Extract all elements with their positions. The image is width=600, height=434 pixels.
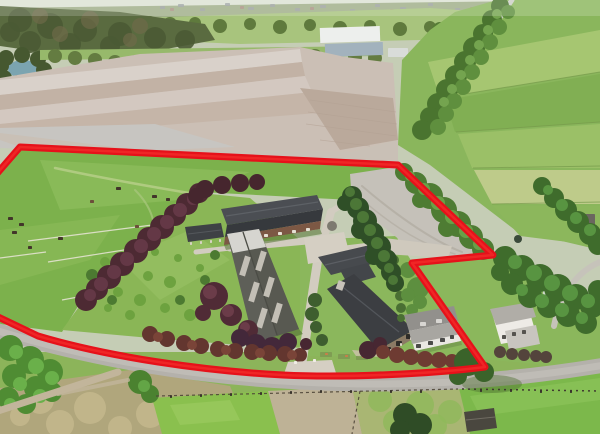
right-tree-highlight (543, 185, 553, 195)
white-house-windows (440, 338, 445, 342)
garden-trees-dark (175, 295, 185, 305)
garden-trees-small (104, 304, 112, 312)
garden-trees-small (174, 254, 182, 262)
gate-posts (313, 359, 316, 362)
stable-windows (306, 228, 310, 231)
grove-highlight (45, 371, 59, 385)
white-house-dormers (436, 319, 442, 323)
right-tree-highlight (544, 275, 560, 291)
distant-tree-row (244, 18, 256, 30)
neighbor-hedge (540, 351, 552, 363)
aerial-photo-svg (0, 0, 600, 434)
beech-row-highlight (160, 215, 174, 229)
lake-trees (14, 47, 30, 63)
conifers-highlight (357, 211, 369, 223)
south-hedge-highlight (221, 345, 231, 355)
sand-patches (74, 392, 106, 424)
beech-row-highlight (173, 203, 187, 217)
beech-behind-stable (249, 174, 265, 190)
neighbor-hedge (506, 348, 518, 360)
mixed-paddock-green (368, 388, 392, 412)
garden-trees-dark (107, 295, 117, 305)
beech-behind-stable (188, 188, 204, 204)
right-tree-highlight (526, 265, 542, 281)
grazing-animals (8, 217, 13, 220)
fence-posts (260, 392, 262, 395)
beech-behind-stable (213, 176, 231, 194)
stable-windows (292, 230, 296, 233)
white-house-windows (428, 341, 433, 345)
road-trees-mid (491, 19, 507, 35)
conifers-highlight (371, 237, 383, 249)
grove-highlight (28, 358, 44, 374)
road-trees-mid (482, 34, 498, 50)
gate-posts (294, 361, 297, 364)
grazing-animals (152, 195, 157, 198)
pavilion-posts (219, 239, 221, 242)
house-garden-trees (401, 288, 415, 302)
top-haze (0, 0, 600, 16)
fence-posts (480, 389, 482, 392)
south-hedge-highlight (255, 348, 265, 358)
grove-highlight (9, 345, 23, 359)
woodland-brown (52, 26, 68, 42)
woodland-brown (123, 33, 137, 47)
stable-windows (264, 234, 268, 237)
grazing-animals-brown (90, 200, 94, 203)
conifers-highlight (350, 198, 362, 210)
field-edge-hedgerow (48, 49, 62, 63)
atmosphere (0, 0, 600, 16)
right-tree-mass (491, 263, 509, 281)
south-hedge-highlight (187, 340, 197, 350)
grazing-animals (166, 198, 170, 201)
beech-row-highlight (134, 239, 148, 253)
road-trees-light (439, 97, 449, 107)
grove-highlight (13, 377, 27, 391)
east-hedge (389, 347, 405, 363)
flower-accents (345, 355, 348, 357)
fence-posts (230, 393, 232, 396)
house-west-trees (305, 307, 319, 321)
fence-posts (290, 391, 292, 394)
house-east-hedge (396, 303, 406, 313)
distant-tree-row (213, 19, 227, 33)
garden-trees-small (164, 276, 176, 288)
east-hedge (417, 351, 433, 367)
road-trees-light (447, 84, 457, 94)
fence-posts (420, 390, 422, 393)
right-tree-highlight (581, 294, 595, 308)
flower-accents (325, 353, 328, 355)
right-tree-highlight (584, 224, 596, 236)
water-basin (327, 221, 337, 231)
grazing-animals (12, 231, 17, 234)
conifers-highlight (388, 275, 398, 285)
small-sheds (388, 48, 408, 57)
woodland-texture (175, 30, 195, 50)
beech-row-highlight (147, 227, 161, 241)
beech-garden (195, 305, 211, 321)
east-hedge (403, 349, 419, 365)
right-tree-highlight (556, 199, 568, 211)
pavilion-posts (190, 242, 192, 245)
house-east-hedge (397, 314, 405, 322)
right-tree-highlight (562, 285, 578, 301)
right-tree-highlight (508, 255, 522, 269)
white-house-windows (450, 335, 454, 339)
road-trees-mid (464, 64, 480, 80)
cottage-windows (502, 335, 506, 339)
road-trees-mid (473, 49, 489, 65)
south-hedge-highlight (287, 350, 297, 360)
flower-beds (338, 354, 350, 359)
conifers-highlight (364, 224, 376, 236)
road-trees-dark (412, 120, 432, 140)
stable-windows (278, 232, 282, 235)
beech-garden-highlight (203, 285, 217, 299)
trampoline (514, 235, 522, 243)
garden-trees-dark (210, 250, 220, 260)
pavilion-posts (200, 241, 202, 244)
road-trees-light (456, 70, 466, 80)
road-trees-light (474, 40, 484, 50)
fence-posts (510, 389, 512, 392)
house-west-trees (308, 293, 322, 307)
fence-posts (200, 394, 202, 397)
conifers-highlight (378, 250, 390, 262)
garden-trees-small (184, 309, 196, 321)
south-hedge-highlight (153, 332, 163, 342)
house-posts (400, 343, 402, 346)
aerial-photo (0, 0, 600, 434)
beech-row-highlight (120, 252, 134, 266)
conifers-highlight (345, 187, 355, 197)
garden-trees-small (160, 303, 170, 313)
distant-tree-row (393, 22, 407, 36)
house-west-trees (316, 334, 328, 346)
fence-posts (390, 390, 392, 393)
fence-posts (350, 390, 352, 393)
gate-trees (300, 338, 312, 350)
grazing-animals (19, 223, 24, 226)
fence-posts (540, 390, 542, 393)
white-house-dormers (420, 322, 426, 326)
beech-row-highlight (84, 289, 96, 301)
white-warehouse (320, 26, 380, 43)
house-west-trees (310, 321, 322, 333)
garden-trees-small (125, 310, 135, 320)
grazing-animals (58, 237, 63, 240)
woodland-brown (132, 18, 148, 34)
conifers-highlight (384, 263, 394, 273)
grazing-animals-brown (135, 225, 139, 228)
grazing-animals (116, 187, 121, 190)
road-trees-mid (430, 119, 446, 135)
fence-posts (320, 390, 322, 393)
road-trees-mid (455, 79, 471, 95)
distant-tree-row (273, 20, 287, 34)
field-edge-hedgerow (68, 51, 82, 65)
east-hedge (431, 352, 447, 368)
road-trees-light (483, 25, 493, 35)
road-trees-light (465, 55, 475, 65)
garden-trees-small (113, 287, 123, 297)
neighbor-hedge (518, 349, 530, 361)
cottage-windows (512, 332, 516, 336)
right-tree-highlight (555, 303, 569, 317)
woodland-texture (0, 22, 20, 42)
garden-trees-small (134, 294, 146, 306)
white-house-windows (416, 344, 421, 348)
beech-garden-highlight (222, 305, 234, 317)
woodland-texture (144, 27, 166, 49)
right-tree-highlight (535, 294, 549, 308)
beech-row-highlight (94, 277, 108, 291)
neighbor-hedge (494, 346, 506, 358)
east-hedge (376, 345, 390, 359)
dirt-paddock (268, 387, 362, 434)
fence-posts (170, 395, 172, 398)
right-tree-highlight (516, 284, 528, 296)
cottage-windows (522, 330, 526, 334)
grazing-animals (28, 246, 32, 249)
pavilion-posts (210, 240, 212, 243)
right-tree-highlight (576, 312, 588, 324)
lone-tree-highlight (138, 380, 150, 392)
beech-row-highlight (107, 265, 121, 279)
garden-trees-small (196, 264, 204, 272)
distant-tree-row (304, 19, 316, 31)
beech-behind-stable (231, 174, 249, 192)
right-tree-highlight (570, 212, 582, 224)
fence-posts (570, 390, 572, 393)
garden-trees-small (143, 271, 153, 281)
